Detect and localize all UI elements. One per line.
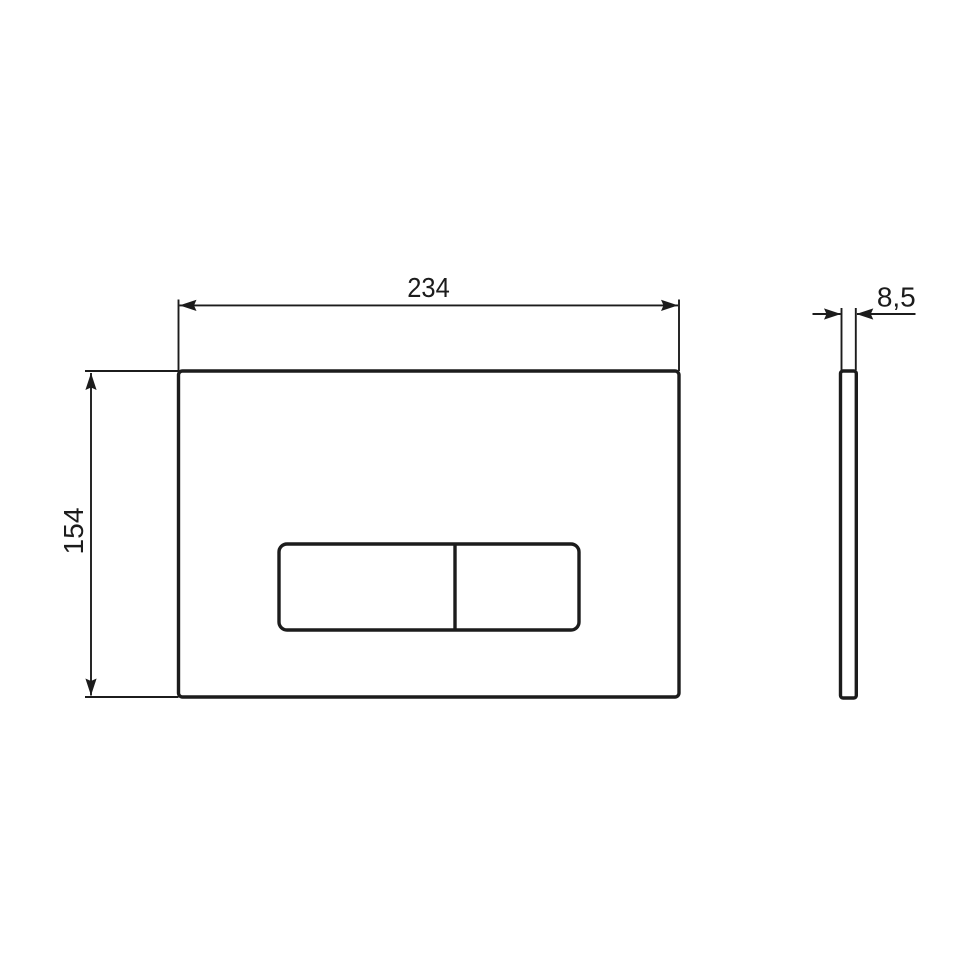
svg-text:234: 234 — [407, 272, 450, 303]
svg-text:154: 154 — [58, 508, 89, 555]
svg-text:8,5: 8,5 — [877, 282, 916, 313]
